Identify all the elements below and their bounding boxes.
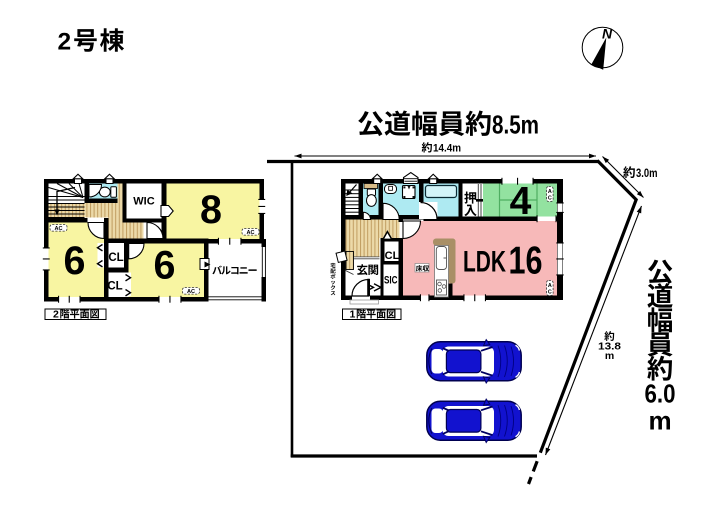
svg-text:LDK: LDK bbox=[463, 246, 506, 279]
svg-text:1: 1 bbox=[350, 309, 356, 321]
svg-text:8.5m: 8.5m bbox=[492, 110, 539, 140]
svg-text:6: 6 bbox=[154, 244, 176, 288]
svg-text:A: A bbox=[548, 189, 552, 195]
svg-text:16: 16 bbox=[509, 240, 543, 283]
svg-text:m: m bbox=[648, 406, 671, 436]
svg-text:8: 8 bbox=[200, 188, 222, 232]
svg-text:CL: CL bbox=[107, 281, 122, 293]
svg-text:2: 2 bbox=[58, 29, 72, 56]
svg-text:AC: AC bbox=[246, 230, 254, 236]
svg-text:6.0: 6.0 bbox=[645, 379, 676, 409]
svg-text:AC: AC bbox=[187, 289, 195, 295]
svg-text:CL: CL bbox=[108, 252, 123, 264]
svg-text:WIC: WIC bbox=[133, 196, 154, 208]
svg-text:AC: AC bbox=[54, 226, 62, 232]
svg-text:SIC: SIC bbox=[384, 275, 398, 287]
svg-text:C: C bbox=[548, 196, 552, 202]
svg-text:4: 4 bbox=[510, 180, 532, 223]
svg-text:m: m bbox=[605, 350, 614, 362]
svg-text:6: 6 bbox=[64, 239, 86, 283]
svg-text:CL: CL bbox=[385, 250, 400, 262]
svg-text:N: N bbox=[602, 26, 613, 42]
svg-text:14.4m: 14.4m bbox=[433, 143, 461, 155]
svg-text:A: A bbox=[548, 283, 552, 289]
svg-text:2: 2 bbox=[53, 309, 59, 321]
svg-text:C: C bbox=[548, 290, 552, 296]
svg-text:3.0m: 3.0m bbox=[636, 166, 658, 180]
